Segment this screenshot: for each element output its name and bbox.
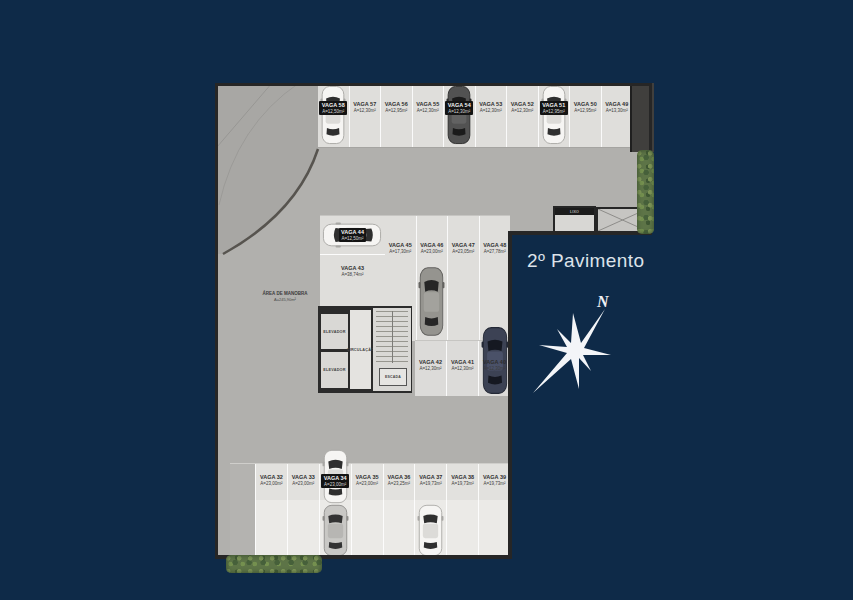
compass-north-icon: N: [527, 293, 627, 405]
stall-name: VAGA 37: [415, 474, 446, 481]
stall-area: A=12,30m²: [415, 366, 446, 371]
stall-label: VAGA 49A=13,30m²: [602, 101, 633, 113]
parking-stall-vaga-49: VAGA 49A=13,30m²: [601, 83, 633, 147]
stall-name: VAGA 55: [413, 101, 444, 108]
stall-area: A=23,05m²: [448, 249, 479, 254]
hedge-bottom: [226, 555, 322, 573]
parking-stall-vaga-55: VAGA 55A=12,30m²: [412, 83, 444, 147]
stall-area: A=12,95m²: [542, 109, 565, 114]
stall-area: A=12,30m²: [507, 108, 538, 113]
parking-stall-vaga-56: VAGA 56A=12,95m²: [380, 83, 412, 147]
parking-stall-vaga-54: VAGA 54A=12,30m²: [443, 83, 475, 147]
stall-name: VAGA 36: [384, 474, 415, 481]
stall-name: VAGA 40: [479, 359, 510, 366]
parking-stall-vaga-57: VAGA 57A=12,30m²: [349, 83, 381, 147]
stall-name: VAGA 49: [602, 101, 633, 108]
parking-stall-vaga-39: VAGA 39A=19,73m²: [478, 464, 510, 558]
stall-area: A=12,95m²: [570, 108, 601, 113]
stall-label: VAGA 57A=12,30m²: [350, 101, 381, 113]
stall-area: A=23,00m²: [288, 481, 319, 486]
stall-name: VAGA 53: [476, 101, 507, 108]
stall-name: VAGA 38: [447, 474, 478, 481]
stall-name: VAGA 42: [415, 359, 446, 366]
elevator-1: ELEVADOR: [321, 314, 348, 349]
stairwell: ESCADA: [373, 308, 411, 391]
stall-label: VAGA 56A=12,95m²: [381, 101, 412, 113]
stall-area: A=19,73m²: [415, 481, 446, 486]
parking-stall-vaga-53: VAGA 53A=12,30m²: [475, 83, 507, 147]
stall-area: A=23,00m²: [417, 249, 448, 254]
trash-room-label: LIXO: [555, 208, 594, 215]
stall-name: VAGA 35: [352, 474, 383, 481]
maneuver-line2: A=245,90m²: [240, 297, 330, 302]
parking-row-top: VAGA 58A=12,50m²VAGA 57A=12,30m²VAGA 56A…: [318, 83, 632, 148]
stall-name: VAGA 41: [447, 359, 478, 366]
circulation-label: CIRCULAÇÃO: [347, 348, 375, 352]
stall-area: A=12,95m²: [381, 108, 412, 113]
stall-label: VAGA 38A=19,73m²: [447, 474, 478, 486]
parking-stall-vaga-52: VAGA 52A=12,30m²: [506, 83, 538, 147]
wall-step: [508, 231, 652, 235]
stall-label: VAGA 50A=12,95m²: [570, 101, 601, 113]
stall-label: VAGA 39A=19,73m²: [479, 474, 510, 486]
stall-name: VAGA 57: [350, 101, 381, 108]
stall-label: VAGA 42A=12,30m²: [415, 359, 446, 371]
stall-label: VAGA 55A=12,30m²: [413, 101, 444, 113]
stall-label: VAGA 40A=12,30m²: [479, 359, 510, 371]
stall-label: VAGA 45A=17,30m²: [385, 242, 416, 254]
stall-name: VAGA 32: [256, 474, 287, 481]
stair-landing: ESCADA: [379, 368, 407, 386]
parking-stall-vaga-33: VAGA 33A=23,00m²: [287, 464, 319, 558]
stall-label: VAGA 33A=23,00m²: [288, 474, 319, 486]
parking-stall-vaga-41: VAGA 41A=12,30m²: [446, 341, 478, 396]
parking-stall-vaga-35: VAGA 35A=23,00m²: [351, 464, 383, 558]
stall-area: A=12,30m²: [479, 366, 510, 371]
screenshot-stage: VAGA 58A=12,50m²VAGA 57A=12,30m²VAGA 56A…: [0, 0, 853, 600]
stall-area: A=17,30m²: [385, 249, 416, 254]
elevator-stair-core: ELEVADOR ELEVADOR CIRCULAÇÃO ESCADA: [318, 306, 412, 393]
parking-stall-vaga-40: VAGA 40A=12,30m²: [478, 341, 510, 396]
stall-label: VAGA 44 A=12,50m²: [339, 228, 367, 242]
stall-area: A=12,50m²: [322, 109, 345, 114]
stall-name: VAGA 56: [381, 101, 412, 108]
stall-name: VAGA 48: [480, 242, 511, 249]
parking-stall-vaga-34: VAGA 34A=23,00m²: [319, 464, 351, 558]
parking-stall-vaga-37: VAGA 37A=19,73m²: [414, 464, 446, 558]
stall-area: A=12,30m²: [448, 109, 471, 114]
stall-name: VAGA 58: [322, 102, 345, 109]
stall-name: VAGA 50: [570, 101, 601, 108]
maneuver-area-label: ÁREA DE MANOBRA A=245,90m²: [240, 291, 330, 302]
stall-label: VAGA 53A=12,30m²: [476, 101, 507, 113]
hedge-right: [637, 150, 654, 234]
parking-stall-vaga-48: VAGA 48A=27,78m²: [479, 216, 511, 341]
stall-label: VAGA 36A=23,25m²: [384, 474, 415, 486]
stall-area: A=19,73m²: [479, 481, 510, 486]
car-top-view: [417, 504, 444, 557]
parking-row-lower-middle: VAGA 42A=12,30m²VAGA 41A=12,30m²VAGA 40A…: [415, 340, 510, 396]
stall-label: VAGA 54A=12,30m²: [445, 101, 473, 115]
parking-stall-vaga-50: VAGA 50A=12,95m²: [569, 83, 601, 147]
parking-stall-vaga-58: VAGA 58A=12,50m²: [318, 83, 349, 147]
parking-stall-vaga-36: VAGA 36A=23,25m²: [383, 464, 415, 558]
stall-area: A=23,00m²: [256, 481, 287, 486]
parking-stall-vaga-43: VAGA 43 A=38,74m²: [320, 265, 385, 277]
elevator-label: ELEVADOR: [323, 368, 345, 372]
parking-stall-vaga-51: VAGA 51A=12,95m²: [538, 83, 570, 147]
stall-label: VAGA 47A=23,05m²: [448, 242, 479, 254]
stall-area: A=23,25m²: [384, 481, 415, 486]
circulation-hall: CIRCULAÇÃO: [350, 310, 371, 389]
aisle-strip: [230, 464, 255, 558]
stair-stringer: [392, 311, 393, 363]
stall-label: VAGA 51A=12,95m²: [540, 101, 568, 115]
stall-name: VAGA 44: [341, 229, 364, 236]
stall-area: A=12,30m²: [350, 108, 381, 113]
stall-label: VAGA 34A=23,00m²: [321, 474, 349, 488]
stall-name: VAGA 54: [448, 102, 471, 109]
parking-stall-vaga-46: VAGA 46A=23,00m²: [416, 216, 448, 341]
stall-name: VAGA 47: [448, 242, 479, 249]
parking-stall-vaga-32: VAGA 32A=23,00m²: [255, 464, 287, 558]
stall-name: VAGA 39: [479, 474, 510, 481]
parking-row-bottom: VAGA 32A=23,00m²VAGA 33A=23,00m²VAGA 34A…: [230, 463, 510, 558]
elevator-2: ELEVADOR: [321, 352, 348, 388]
wall-left: [215, 83, 218, 558]
stall-area: A=13,30m²: [602, 108, 633, 113]
stall-area: A=12,30m²: [413, 108, 444, 113]
stall-label: VAGA 48A=27,78m²: [480, 242, 511, 254]
stall-name: VAGA 43: [320, 265, 385, 272]
stall-area: A=27,78m²: [480, 249, 511, 254]
car-top-view: [446, 85, 472, 145]
stall-label: VAGA 35A=23,00m²: [352, 474, 383, 486]
ramp-area: [215, 83, 325, 263]
page-title: 2º Pavimento: [527, 250, 644, 272]
stall-area: A=12,30m²: [476, 108, 507, 113]
stall-label: VAGA 41A=12,30m²: [447, 359, 478, 371]
stall-name: VAGA 52: [507, 101, 538, 108]
stall-name: VAGA 51: [542, 102, 565, 109]
stall-area: A=23,00m²: [352, 481, 383, 486]
parking-stall-vaga-38: VAGA 38A=19,73m²: [446, 464, 478, 558]
stall-area: A=19,73m²: [447, 481, 478, 486]
stairs-label: ESCADA: [385, 375, 401, 379]
stall-name: VAGA 34: [324, 475, 347, 482]
car-top-view: [418, 266, 445, 337]
car-top-view: [322, 504, 349, 557]
stall-area: A=12,50m²: [341, 236, 364, 241]
stall-area: A=38,74m²: [320, 272, 385, 277]
wall-top: [215, 83, 652, 86]
stall-name: VAGA 45: [385, 242, 416, 249]
stall-label: VAGA 37A=19,73m²: [415, 474, 446, 486]
parking-stall-vaga-47: VAGA 47A=23,05m²: [447, 216, 479, 341]
stall-label: VAGA 52A=12,30m²: [507, 101, 538, 113]
stall-name: VAGA 46: [417, 242, 448, 249]
wall-right-lower: [508, 231, 512, 558]
stall-label: VAGA 43 A=38,74m²: [320, 265, 385, 277]
stall-label: VAGA 46A=23,00m²: [417, 242, 448, 254]
car-top-view: [541, 85, 567, 145]
car-top-view: [320, 85, 346, 145]
elevator-label: ELEVADOR: [323, 330, 345, 334]
stall-area: A=23,00m²: [324, 482, 347, 487]
stall-area: A=12,30m²: [447, 366, 478, 371]
parking-stall-vaga-42: VAGA 42A=12,30m²: [415, 341, 446, 396]
compass-north-label: N: [596, 293, 610, 310]
stall-label: VAGA 32A=23,00m²: [256, 474, 287, 486]
trash-room: LIXO: [553, 206, 596, 233]
stall-name: VAGA 33: [288, 474, 319, 481]
stall-label: VAGA 58A=12,50m²: [319, 101, 347, 115]
parking-stall-vaga-44: VAGA 44 A=12,50m²: [320, 216, 385, 255]
